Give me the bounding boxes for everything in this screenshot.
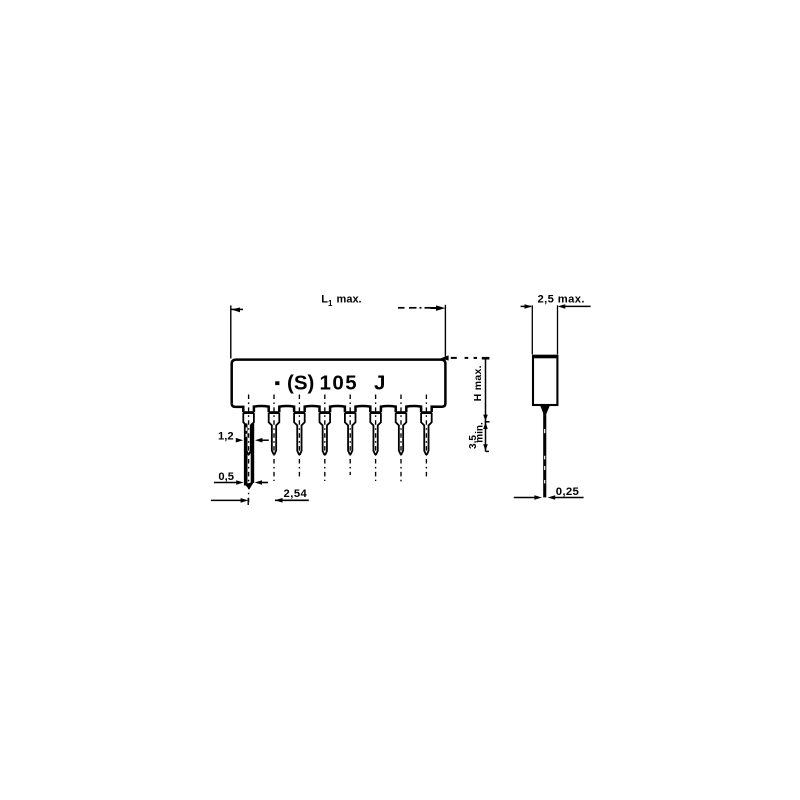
svg-text:2,5 max.: 2,5 max. — [538, 293, 585, 305]
svg-text:min.: min. — [475, 422, 486, 443]
svg-text:105: 105 — [320, 372, 359, 395]
svg-text:2,54: 2,54 — [284, 488, 308, 500]
svg-text:0,5: 0,5 — [218, 471, 234, 483]
svg-text:L1 max.: L1 max. — [321, 294, 361, 308]
svg-text:1,2: 1,2 — [218, 430, 234, 442]
svg-text:0,25: 0,25 — [556, 486, 580, 498]
svg-text:(S): (S) — [287, 372, 314, 395]
svg-text:J: J — [374, 372, 385, 395]
svg-text:H max.: H max. — [472, 365, 484, 401]
